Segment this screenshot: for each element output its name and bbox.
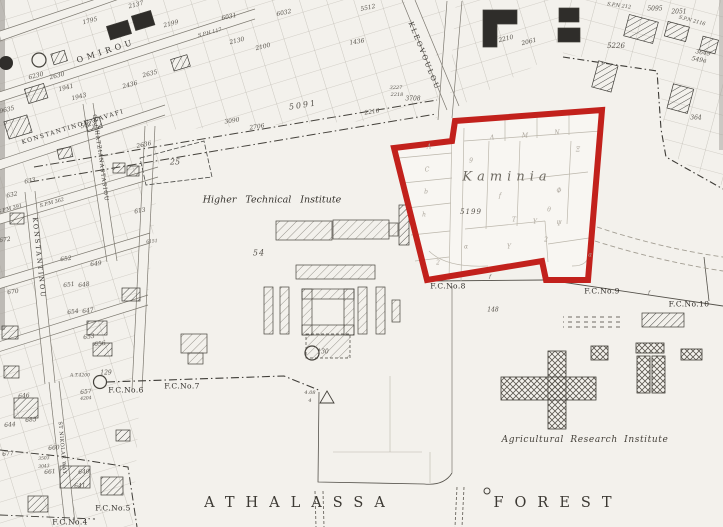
cadastral-map: Kaminia Higher Technical Institute Agric… <box>0 0 723 527</box>
map-linework <box>0 0 723 527</box>
